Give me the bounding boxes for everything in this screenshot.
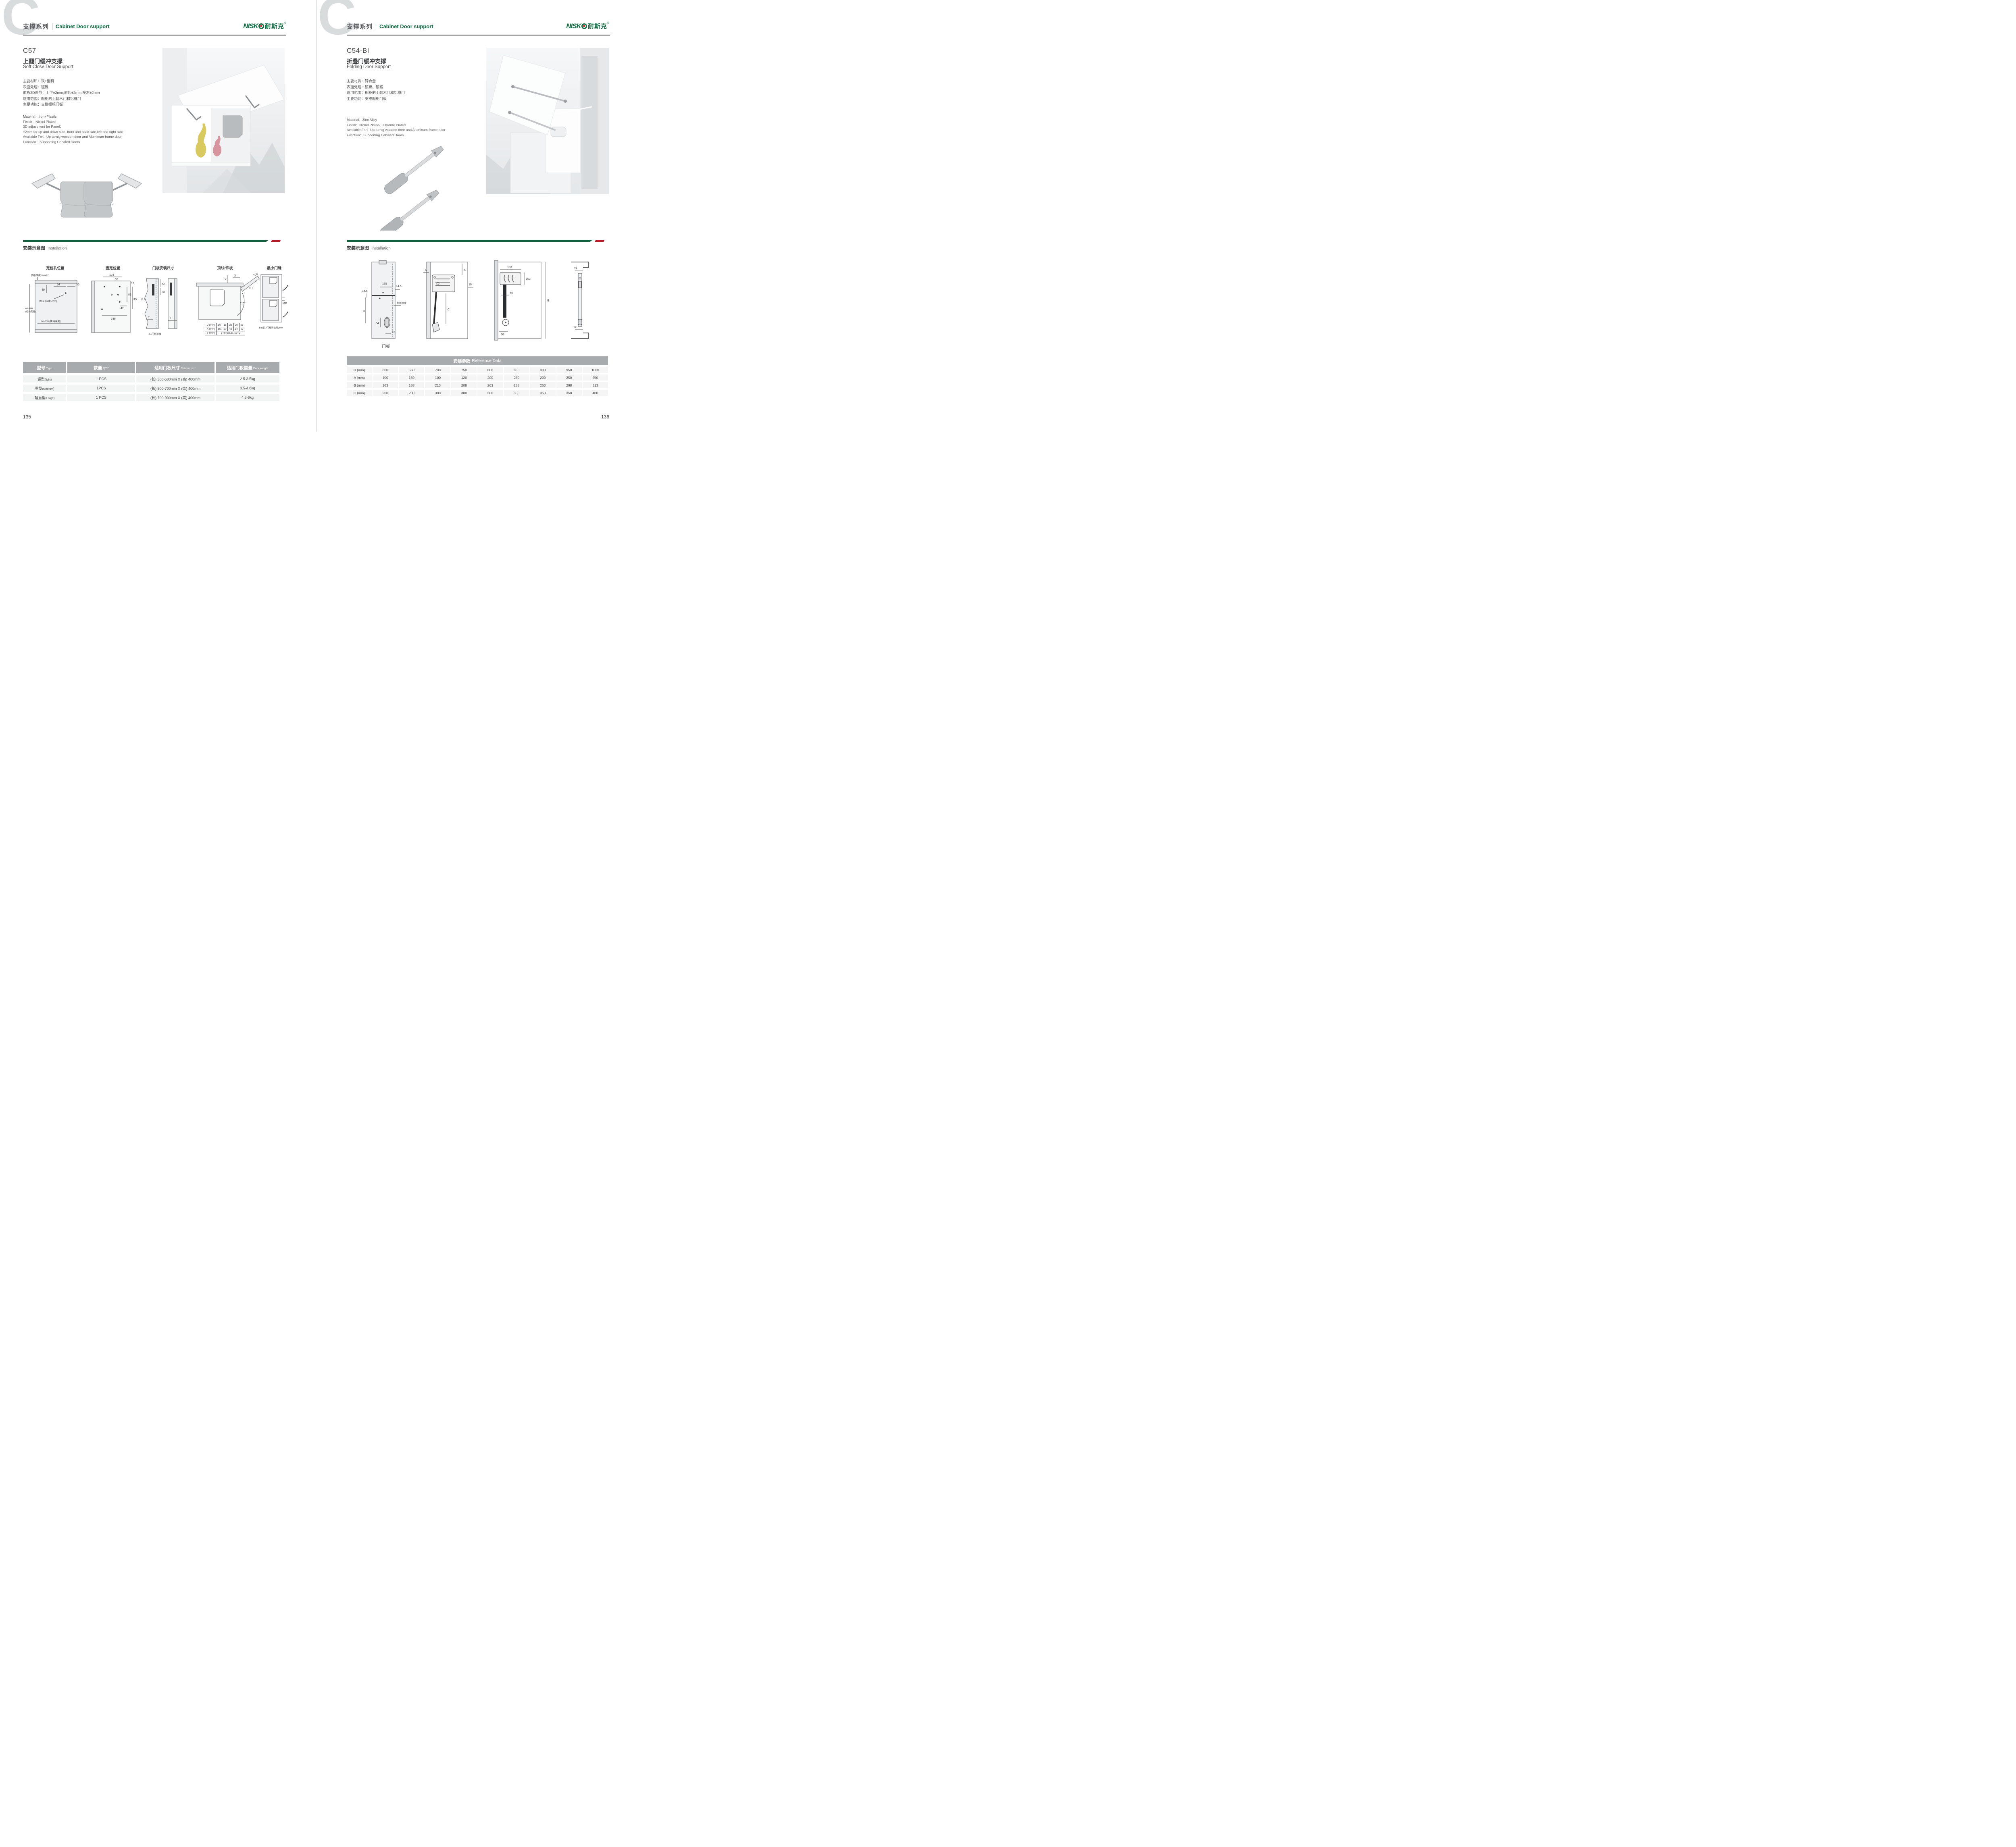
diagram-positioning-holes: 定位孔位置 顶板厚度 max22 49 64 36 Φ5.2 (深度5mm): [25, 265, 85, 337]
table-row: A (mm) 100150100120200250200250250: [347, 374, 608, 381]
series-title-cn: 支撑系列: [347, 22, 373, 31]
spec-line: Material：Zinc Alloy: [347, 117, 446, 123]
svg-text:12.5: 12.5: [141, 299, 146, 301]
series-title-en: Cabinet Door support: [379, 23, 433, 29]
svg-text:(柜内高度): (柜内高度): [25, 310, 36, 313]
series-letter-watermark: C: [2, 0, 40, 43]
table-row: 超重型(Large) 1 PCS (长) 700-900mm X (高) 400…: [23, 394, 279, 401]
spec-line: 表面处理：镀镍、镀铬: [347, 84, 405, 90]
diagram-profile: 24 12: [568, 259, 594, 341]
spec-table: 型号Type 数量QTY 适用门板尺寸Cabinet size 适用门板重量Do…: [22, 360, 281, 403]
svg-text:FH: FH: [249, 287, 252, 290]
svg-text:12: 12: [131, 282, 134, 285]
svg-text:D: D: [256, 273, 258, 276]
svg-text:Fm最小门缝开启时2mm: Fm最小门缝开启时2mm: [259, 326, 283, 329]
divider-red-accent: [271, 240, 281, 242]
svg-text:Y: Y: [225, 278, 227, 281]
spec-line: 主要材质：铁+塑料: [23, 78, 100, 84]
svg-text:B: B: [363, 310, 365, 313]
brand-logo-red-dot: [583, 25, 585, 27]
svg-text:Φ5.2 (深度5mm): Φ5.2 (深度5mm): [39, 300, 57, 303]
installation-diagrams: 135 14.5 14.5 B 54 12 侧板厚度: [347, 256, 613, 359]
col-weight: 适用门板重量Door weight: [216, 362, 279, 373]
specs-en: Material：Iron+Plastic Finish：Nickel Plat…: [23, 114, 123, 145]
spec-line: 主要材质：锌合金: [347, 78, 405, 84]
svg-text:侧板厚度: 侧板厚度: [397, 302, 406, 305]
table-row: H (mm) 6006507007508008509009501000: [347, 367, 608, 373]
product-image: [30, 171, 143, 219]
svg-text:C: C: [448, 308, 450, 311]
page-number: 136: [601, 414, 609, 420]
svg-text:12: 12: [573, 326, 577, 329]
header-rule: [23, 35, 286, 35]
specs-en: Material：Zinc Alloy Finish：Nickel Plated…: [347, 117, 446, 137]
brand-logo-cn: 耐斯克: [265, 22, 284, 30]
spec-line: Function：Supoorting Cabined Doors: [347, 133, 446, 138]
svg-text:12: 12: [392, 331, 395, 334]
registered-mark: ®: [607, 22, 609, 25]
product-code: C57: [23, 47, 36, 55]
header-rule: [347, 35, 610, 35]
svg-text:49: 49: [42, 289, 45, 291]
svg-text:H: H: [547, 299, 549, 302]
brand-logo: NISK 耐斯克 ®: [566, 22, 609, 30]
svg-text:81: 81: [128, 293, 131, 296]
diagram-door-panel: 135 14.5 14.5 B 54 12 侧板厚度: [362, 259, 410, 349]
registered-mark: ®: [284, 22, 286, 25]
application-photo: [162, 48, 285, 193]
col-qty: 数量QTY: [67, 362, 135, 373]
diagram-fixing-position: 固定位置 124 52 12 81 115: [88, 265, 137, 337]
header-separator: [52, 23, 52, 30]
svg-text:54: 54: [376, 322, 379, 325]
crown-panel-table: D (mm)1618222628 X (mm)5550423429 Y (mm)…: [205, 323, 245, 335]
page-header: 支撑系列 Cabinet Door support: [23, 22, 110, 31]
specs-cn: 主要材质：锌合金 表面处理：镀镍、镀铬 适用范围：橱柜的上翻木门和铝框门 主要功…: [347, 78, 405, 102]
table-row: 重型(Medium) 1PCS (长) 500-700mm X (高) 400m…: [23, 385, 279, 392]
divider-red-accent: [595, 240, 604, 242]
product-name-cn: 上翻门缓冲支撑: [23, 57, 62, 65]
svg-text:50: 50: [501, 333, 504, 336]
diagram-cabinet-side: 5 A 19 C: [420, 259, 475, 341]
svg-text:A: A: [464, 269, 466, 272]
brand-logo-latin: NISK: [566, 22, 581, 30]
header-separator: [376, 23, 376, 30]
series-title-en: Cabinet Door support: [56, 23, 110, 29]
spec-line: 适用范围：橱柜的上翻木门和铝框门: [347, 90, 405, 96]
svg-text:146: 146: [111, 318, 116, 320]
svg-text:32: 32: [162, 291, 165, 294]
product-image: [366, 145, 458, 231]
product-code: C54-BI: [347, 47, 369, 55]
svg-text:顶板厚度 max22: 顶板厚度 max22: [31, 274, 49, 277]
section-divider: [23, 240, 286, 242]
specs-cn: 主要材质：铁+塑料 表面处理：镀镍 面板3D调节：上下±2mm,前后±2mm,左…: [23, 78, 100, 108]
spec-line: 3D adjustment for Panel：: [23, 124, 123, 129]
product-name-en: Soft Close Door Support: [23, 64, 73, 69]
svg-text:5: 5: [425, 269, 427, 272]
svg-text:102: 102: [526, 278, 531, 281]
page-136: C 支撑系列 Cabinet Door support NISK 耐斯克 ® C…: [316, 0, 632, 432]
diagram-min-gap: 最小门缝 MF Fm最小门缝开启时2mm: [259, 265, 289, 333]
svg-text:36: 36: [76, 283, 79, 286]
product-name-cn: 折叠门缓冲支撑: [347, 57, 386, 65]
svg-text:T: T: [170, 317, 172, 320]
table-row: 轻型(light) 1 PCS (长) 300-500mm X (高) 400m…: [23, 375, 279, 383]
page-135: C 支撑系列 Cabinet Door support NISK 耐斯克 ® C…: [0, 0, 316, 432]
installation-title: 安装示意图Installation: [347, 244, 391, 252]
brand-logo-o-icon: [581, 23, 587, 29]
brand-logo: NISK 耐斯克 ®: [243, 22, 286, 30]
series-letter-watermark: C: [318, 0, 356, 43]
spec-line: Finish：Nickel Plated: [23, 119, 123, 125]
brand-logo-o-icon: [258, 23, 264, 29]
table-header-row: 型号Type 数量QTY 适用门板尺寸Cabinet size 适用门板重量Do…: [23, 362, 279, 373]
svg-text:193: 193: [507, 266, 512, 269]
reference-table: 安装参数 Reference Data H (mm) 6006507007508…: [347, 356, 608, 397]
svg-text:24: 24: [574, 267, 577, 270]
col-type: 型号Type: [23, 362, 66, 373]
table-row: B (mm) 163188213208263288263288313: [347, 382, 608, 388]
svg-text:115: 115: [132, 298, 137, 301]
spec-line: Function：Supoorting Cabined Doors: [23, 139, 123, 145]
svg-text:19: 19: [469, 283, 472, 286]
svg-text:MF: MF: [283, 302, 287, 305]
spec-line: 面板3D调节：上下±2mm,前后±2mm,左右±2mm: [23, 90, 100, 96]
table-row: C (mm) 200200300300300300350350400: [347, 390, 608, 396]
installation-diagrams: 定位孔位置 顶板厚度 max22 49 64 36 Φ5.2 (深度5mm): [23, 256, 289, 359]
spec-line: Finish：Nickel Plated、Chrome Plated: [347, 123, 446, 128]
spec-line: Material：Iron+Plastic: [23, 114, 123, 119]
spec-line: 主要功能：支撑橱柜门板: [23, 102, 100, 108]
svg-text:53: 53: [162, 283, 165, 286]
col-size: 适用门板尺寸Cabinet size: [136, 362, 215, 373]
application-photo: [486, 48, 609, 194]
svg-text:135: 135: [382, 283, 387, 285]
divider-green-bar: [347, 240, 592, 242]
brand-logo-red-dot: [260, 25, 262, 27]
svg-text:T: T: [148, 316, 150, 319]
spec-line: 表面处理：镀镍: [23, 84, 100, 90]
diagram-crown-panel: 顶线/饰板 Y X D FH 110°: [189, 265, 261, 335]
diagram-door-mounting-size: 门板安装尺寸 53 32 12.5 T T: [141, 265, 186, 337]
brand-logo-cn: 耐斯克: [588, 22, 607, 30]
svg-text:124: 124: [109, 274, 114, 277]
spec-line: 主要功能：支撑橱柜门板: [347, 96, 405, 102]
svg-text:min200: min200: [25, 308, 33, 310]
series-title-cn: 支撑系列: [23, 22, 49, 31]
reference-table-title: 安装参数 Reference Data: [347, 356, 608, 365]
installation-title: 安装示意图Installation: [23, 244, 67, 252]
product-name-en: Folding Door Support: [347, 64, 391, 69]
spec-line: ±2mm for up and down side, front and bac…: [23, 129, 123, 135]
spec-line: Available For：Up-turnig wooden door and …: [23, 134, 123, 139]
svg-text:min230 (柜内深度): min230 (柜内深度): [41, 320, 60, 323]
svg-text:110°: 110°: [240, 302, 246, 305]
svg-text:T=门板厚度: T=门板厚度: [149, 333, 161, 336]
svg-text:X: X: [234, 275, 236, 277]
page-number: 135: [23, 414, 31, 420]
divider-green-bar: [23, 240, 268, 242]
page-header: 支撑系列 Cabinet Door support: [347, 22, 433, 31]
svg-text:64: 64: [57, 283, 60, 286]
brand-logo-latin: NISK: [243, 22, 258, 30]
svg-text:42: 42: [121, 307, 124, 310]
svg-text:23: 23: [510, 292, 513, 295]
catalog-spread: C 支撑系列 Cabinet Door support NISK 耐斯克 ® C…: [0, 0, 632, 432]
svg-text:14.5: 14.5: [396, 285, 402, 288]
spec-line: Available For：Up-turnig wooden door and …: [347, 127, 446, 133]
section-divider: [347, 240, 610, 242]
spec-line: 适用范围：橱柜的上翻木门和铝框门: [23, 96, 100, 102]
svg-text:14.5: 14.5: [362, 290, 368, 293]
diagram-elevation: 193 102 23 H 50: [487, 259, 550, 341]
svg-text:52: 52: [115, 278, 118, 281]
page-divider-line: [316, 0, 317, 432]
